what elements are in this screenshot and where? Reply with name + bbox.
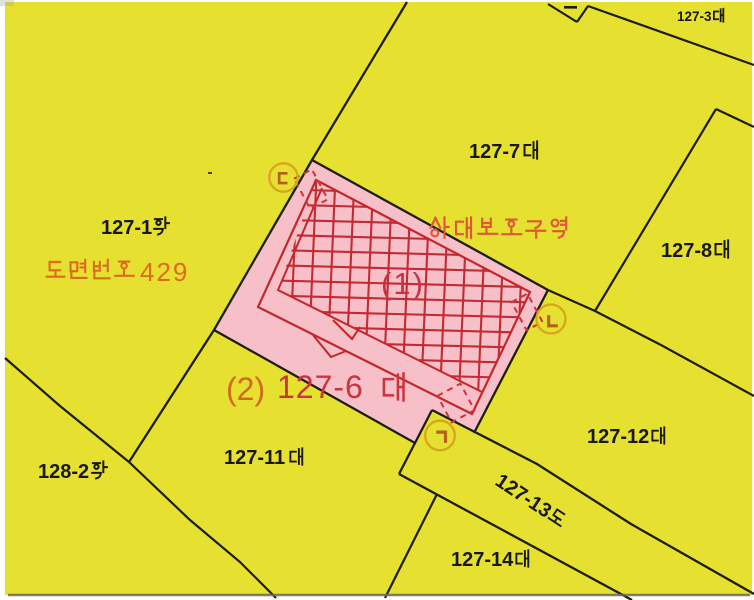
svg-text:127-7: 127-7 <box>469 141 520 163</box>
svg-text:127-14: 127-14 <box>451 549 514 571</box>
svg-text:127-6: 127-6 <box>277 369 364 405</box>
svg-text:127-11: 127-11 <box>224 447 285 469</box>
svg-text:(2): (2) <box>226 371 265 407</box>
svg-text:127-3: 127-3 <box>677 9 712 24</box>
svg-text:128-2: 128-2 <box>38 461 89 483</box>
svg-text:127-8: 127-8 <box>661 240 712 262</box>
svg-text:(1): (1) <box>381 266 425 301</box>
svg-text:429: 429 <box>140 257 189 287</box>
svg-text:127-12: 127-12 <box>587 426 649 448</box>
svg-text:127-1: 127-1 <box>101 217 152 239</box>
